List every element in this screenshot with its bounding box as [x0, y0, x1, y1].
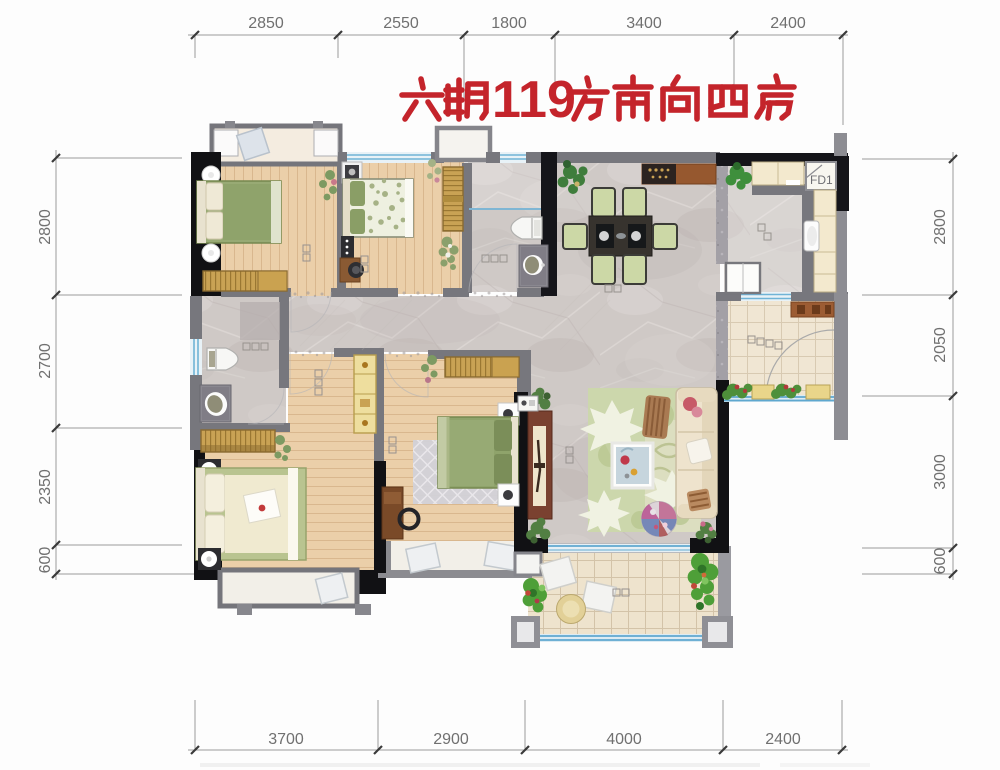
- svg-text:2900: 2900: [433, 731, 469, 748]
- svg-text:2800: 2800: [37, 209, 54, 245]
- svg-text:3000: 3000: [932, 454, 949, 490]
- svg-text:600: 600: [932, 548, 949, 575]
- svg-text:600: 600: [37, 547, 54, 574]
- svg-text:FD1: FD1: [810, 173, 833, 187]
- svg-text:2800: 2800: [932, 209, 949, 245]
- svg-text:2700: 2700: [37, 343, 54, 379]
- svg-text:1800: 1800: [491, 15, 527, 32]
- svg-text:4000: 4000: [606, 731, 642, 748]
- svg-text:2400: 2400: [770, 15, 806, 32]
- svg-text:119: 119: [492, 71, 576, 129]
- svg-text:2050: 2050: [932, 327, 949, 363]
- svg-text:2850: 2850: [248, 15, 284, 32]
- svg-text:2400: 2400: [765, 731, 801, 748]
- svg-text:2350: 2350: [37, 469, 54, 505]
- svg-text:3400: 3400: [626, 15, 662, 32]
- svg-text:2550: 2550: [383, 15, 419, 32]
- svg-text:3700: 3700: [268, 731, 304, 748]
